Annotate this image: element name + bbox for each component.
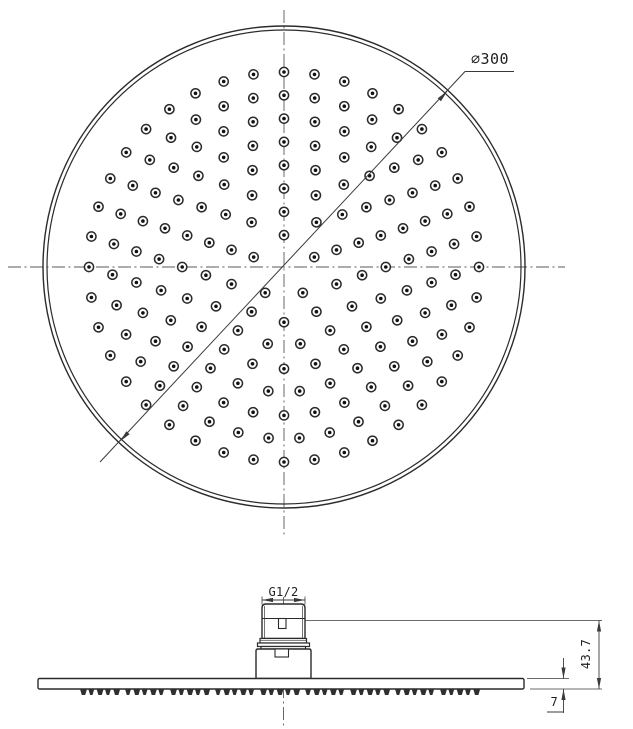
nozzle-center-dot [158,384,162,388]
nozzle-center-dot [426,360,430,364]
nozzle-center-dot [195,145,199,149]
rubber-nozzle-tooth [403,689,410,695]
shower-head-profile [38,604,524,689]
nozzle-center-dot [282,70,286,74]
nozzle-center-dot [475,296,479,300]
nozzle-center-dot [252,255,256,259]
rubber-nozzle-tooth [285,689,291,695]
nozzle-center-dot [250,310,254,314]
nozzle-center-dot [194,439,198,443]
nozzle-center-dot [214,305,218,309]
nozzle-center-dot [314,168,318,172]
nozzle-center-dot [342,183,346,187]
nozzle-center-dot [395,319,399,323]
nozzle-center-dot [208,420,212,424]
nozzle-center-dot [168,107,172,111]
nozzle-center-dot [335,282,339,286]
rubber-nozzle-tooth [97,689,104,695]
nozzle-center-dot [477,265,481,269]
nozzle-center-dot [251,168,255,172]
nozzle-center-dot [371,439,375,443]
nozzle-center-dot [181,404,185,408]
face-plate [38,679,524,690]
rubber-nozzle-tooth [305,689,311,695]
nozzle-center-dot [360,273,364,277]
nozzle-center-dot [163,227,167,231]
nozzle-center-dot [169,319,173,323]
nozzle-center-dot [406,384,410,388]
nozzle-center-dot [186,345,190,349]
nozzle-center-dot [299,342,303,346]
nozzle-center-dot [440,380,444,384]
nozzle-center-dot [230,282,234,286]
nozzle-center-dot [341,213,345,217]
nozzle-center-dot [141,311,145,315]
nozzle-center-dot [298,436,302,440]
nozzle-center-dot [401,227,405,231]
drawing-page: ∅300 G1/2 43.7 7 [0,0,633,729]
nozzle-center-dot [282,460,286,464]
nozzle-center-dot [397,423,401,427]
nozzle-center-dot [313,410,317,414]
nozzle-center-dot [328,431,332,435]
nozzle-center-dot [224,213,228,217]
nozzle-center-dot [119,212,123,216]
nozzle-center-dot [313,458,317,462]
nozzle-center-dot [411,339,415,343]
nozzle-center-dot [440,333,444,337]
rubber-nozzle-tooth [248,689,254,695]
nozzle-center-dot [350,305,354,309]
nozzle-center-dot [416,158,420,162]
nozzle-center-dot [411,191,415,195]
nozzle-center-dot [342,348,346,352]
nozzle-center-dot [315,221,319,225]
nozzle-center-dot [236,329,240,333]
rubber-nozzle-tooth [350,689,357,695]
nozzle-center-dot [450,303,454,307]
rubber-nozzle-tooth [473,689,480,695]
dimension-arrow-icon [120,431,130,441]
rubber-nozzle-tooth [203,689,210,695]
nozzle-center-dot [148,158,152,162]
nozzle-teeth-row [80,689,480,695]
rubber-nozzle-tooth [457,689,464,695]
nozzle-center-dot [313,96,317,100]
nozzle-center-dot [251,144,255,148]
rubber-nozzle-tooth [420,689,427,695]
rubber-nozzle-tooth [268,689,274,695]
nozzle-center-dot [236,382,240,386]
nozzle-center-dot [185,297,189,301]
nozzle-center-dot [282,187,286,191]
nozzle-center-dot [365,325,369,329]
nozzle-center-dot [209,366,213,370]
rubber-nozzle-tooth [215,689,221,695]
nozzle-center-dot [237,431,241,435]
nozzle-center-dot [282,414,286,418]
nozzle-center-dot [90,235,94,239]
nozzle-center-dot [194,92,198,96]
nozzle-center-dot [267,389,271,393]
inlet-slot [279,619,287,629]
rubber-nozzle-tooth [80,689,87,695]
plate-thickness-label: 7 [550,695,558,709]
rubber-nozzle-tooth [277,689,284,695]
nozzle-center-dot [282,140,286,144]
nozzle-center-dot [230,248,234,252]
nozzle-center-dot [159,289,163,293]
nozzle-center-dot [252,96,256,100]
nozzle-center-dot [87,265,91,269]
nozzle-center-dot [379,234,383,238]
nozzle-center-dot [343,156,347,160]
rubber-nozzle-tooth [338,689,344,695]
nozzle-center-dot [124,380,128,384]
nozzle-center-dot [456,177,460,181]
rubber-nozzle-tooth [412,689,418,695]
nozzle-center-dot [144,403,148,407]
nozzle-center-dot [194,118,198,122]
dimension-arrow-icon [597,678,601,689]
nozzle-center-dot [90,296,94,300]
rubber-nozzle-tooth [313,689,320,695]
nozzle-center-dot [208,241,212,245]
nozzle-center-dot [222,80,226,84]
nozzle-center-dot [335,248,339,252]
nozzle-center-dot [124,151,128,155]
nozzle-center-dot [200,205,204,209]
nozzle-center-dot [369,385,373,389]
rubber-nozzle-tooth [88,689,94,695]
nozzle-center-dot [452,242,456,246]
base-notch [275,649,289,657]
nozzle-center-dot [135,281,139,285]
nozzle-center-dot [357,241,361,245]
rubber-nozzle-tooth [170,689,177,695]
nozzle-center-dot [314,194,318,198]
nozzle-center-dot [371,92,375,96]
nozzle-center-dot [157,257,161,261]
nozzle-center-dot [328,382,332,386]
rubber-nozzle-tooth [223,689,230,695]
nozzle-center-dot [263,291,267,295]
nozzle-center-dot [423,311,427,315]
nozzle-center-dot [109,354,113,358]
nozzle-center-dot [393,166,397,170]
nozzle-center-dot [384,265,388,269]
rubber-nozzle-tooth [142,689,148,695]
nozzle-center-dot [440,151,444,155]
nozzle-center-dot [139,360,143,364]
nozzle-center-dot [172,166,176,170]
rubber-nozzle-tooth [358,689,364,695]
nozzle-center-dot [222,104,226,108]
nozzle-center-dot [379,345,383,349]
nozzle-center-dot [343,80,347,84]
nozzle-center-dot [168,423,172,427]
nozzle-center-dot [197,174,201,178]
nozzle-center-dot [195,385,199,389]
rubber-nozzle-tooth [133,689,140,695]
nozzle-center-dot [282,233,286,237]
nozzle-center-dot [430,281,434,285]
nozzle-center-dot [315,310,319,314]
nozzle-center-dot [343,401,347,405]
nozzle-center-dot [379,297,383,301]
nozzle-center-dot [423,219,427,223]
nozzle-center-dot [185,234,189,238]
nozzle-center-dot [109,177,113,181]
nozzle-center-dot [141,219,145,223]
nozzle-center-dot [328,329,332,333]
rubber-nozzle-tooth [232,689,238,695]
rubber-nozzle-tooth [395,689,401,695]
nozzle-center-dot [282,94,286,98]
nozzle-center-dot [222,348,226,352]
nozzle-center-dot [250,194,254,198]
rubber-nozzle-tooth [383,689,390,695]
nozzle-center-dot [282,117,286,121]
top-view-shower-face: ∅300 [8,10,565,538]
nozzle-center-dot [200,325,204,329]
nozzle-center-dot [282,210,286,214]
nozzle-center-dot [180,265,184,269]
rubber-nozzle-tooth [367,689,374,695]
rubber-nozzle-tooth [465,689,471,695]
nozzle-center-dot [222,183,226,187]
nozzle-center-dot [383,404,387,408]
nozzle-center-dot [313,144,317,148]
nozzle-center-dot [169,136,173,140]
nozzle-center-dot [365,205,369,209]
nozzle-center-dot [177,198,181,202]
nozzle-center-dot [370,118,374,122]
rubber-nozzle-tooth [440,689,447,695]
nozzle-center-dot [222,401,226,405]
nozzle-center-dot [313,73,317,77]
nozzle-center-dot [112,242,116,246]
rubber-nozzle-tooth [293,689,300,695]
rubber-nozzle-tooth [428,689,434,695]
nozzle-center-dot [393,365,397,369]
nozzle-center-dot [420,403,424,407]
rubber-nozzle-tooth [330,689,337,695]
rubber-nozzle-tooth [260,689,267,695]
nozzle-center-dot [251,362,255,366]
nozzle-center-dot [314,362,318,366]
dimension-arrow-icon [597,621,601,632]
nozzle-center-dot [388,198,392,202]
nozzle-center-dot [420,127,424,131]
nozzle-center-dot [115,303,119,307]
nozzle-center-dot [204,273,208,277]
nozzle-center-dot [282,163,286,167]
nozzle-center-dot [343,451,347,455]
nozzle-center-dot [282,320,286,324]
nozzle-center-dot [144,127,148,131]
dimension-arrow-icon [561,668,565,679]
nozzle-center-dot [250,221,254,225]
nozzle-center-dot [446,212,450,216]
nozzle-center-dot [397,107,401,111]
nozzle-center-dot [369,145,373,149]
rubber-nozzle-tooth [240,689,247,695]
rubber-nozzle-tooth [322,689,328,695]
rubber-nozzle-tooth [195,689,201,695]
nozzle-center-dot [111,273,115,277]
nozzle-center-dot [282,367,286,371]
rubber-nozzle-tooth [113,689,120,695]
nozzle-center-dot [343,130,347,134]
nozzle-center-dot [343,104,347,108]
nozzle-center-dot [298,389,302,393]
nozzle-center-dot [468,205,472,209]
nozzle-center-dot [222,156,226,160]
rubber-nozzle-tooth [448,689,454,695]
nozzle-center-dot [468,326,472,330]
nozzle-center-dot [430,250,434,254]
nozzle-center-dot [222,451,226,455]
nozzle-center-dot [313,120,317,124]
nozzle-center-dot [251,120,255,124]
diameter-label: ∅300 [471,50,509,68]
nozzle-center-dot [267,436,271,440]
side-view-elevation: G1/2 43.7 7 [38,585,602,727]
nozzle-center-dot [251,410,255,414]
nozzle-center-dot [222,130,226,134]
nozzle-center-dot [97,326,101,330]
nozzle-center-dot [266,342,270,346]
nozzle-center-dot [454,273,458,277]
nozzle-center-dot [357,420,361,424]
nozzle-center-dot [456,354,460,358]
thread-size-label: G1/2 [268,585,298,599]
nozzle-center-dot [252,458,256,462]
nozzle-center-dot [313,255,317,259]
rubber-nozzle-tooth [125,689,131,695]
nozzle-center-dot [97,205,101,209]
nozzle-center-dot [407,257,411,261]
rubber-nozzle-tooth [187,689,194,695]
head-height-label: 43.7 [579,639,593,669]
rubber-nozzle-tooth [105,689,111,695]
nozzle-center-dot [356,366,360,370]
nozzle-center-dot [154,339,158,343]
rubber-nozzle-tooth [150,689,157,695]
nozzle-center-dot [252,73,256,77]
rubber-nozzle-tooth [178,689,184,695]
rubber-nozzle-tooth [375,689,381,695]
dimension-arrow-icon [294,598,305,602]
nozzle-center-dot [395,136,399,140]
nozzle-center-dot [301,291,305,295]
nozzle-center-dot [154,191,158,195]
nozzle-center-dot [124,333,128,337]
nozzle-center-dot [405,289,409,293]
nozzle-center-dot [475,235,479,239]
nozzle-center-dot [131,184,135,188]
rubber-nozzle-tooth [158,689,164,695]
dimension-arrow-icon [561,689,565,700]
technical-drawing-canvas: ∅300 G1/2 43.7 7 [0,0,633,729]
nozzle-center-dot [433,184,437,188]
nozzle-center-dot [172,365,176,369]
nozzle-center-dot [135,250,139,254]
